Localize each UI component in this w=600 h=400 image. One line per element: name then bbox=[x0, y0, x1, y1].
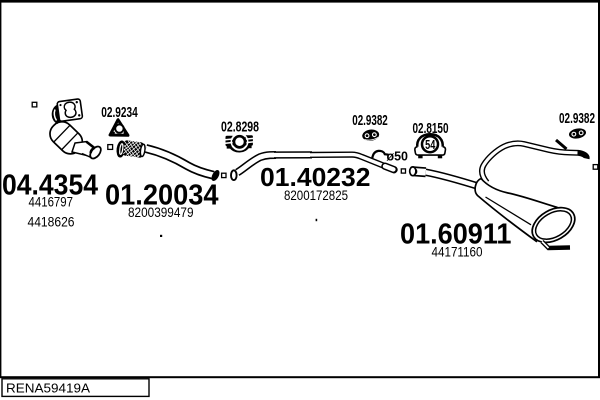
svg-text:8200172825: 8200172825 bbox=[284, 188, 348, 204]
svg-text:RENA59419A: RENA59419A bbox=[6, 382, 91, 396]
svg-text:44171160: 44171160 bbox=[432, 245, 483, 261]
svg-text:02.9382: 02.9382 bbox=[559, 110, 595, 127]
svg-text:02.8298: 02.8298 bbox=[221, 118, 259, 135]
svg-text:54: 54 bbox=[425, 137, 436, 152]
svg-text:02.9234: 02.9234 bbox=[101, 104, 138, 121]
svg-text:02.9382: 02.9382 bbox=[352, 112, 388, 129]
svg-text:4418626: 4418626 bbox=[28, 214, 75, 230]
svg-text:8200399479: 8200399479 bbox=[128, 205, 194, 221]
svg-text:ø50: ø50 bbox=[387, 148, 409, 163]
svg-text:4416797: 4416797 bbox=[29, 195, 74, 211]
